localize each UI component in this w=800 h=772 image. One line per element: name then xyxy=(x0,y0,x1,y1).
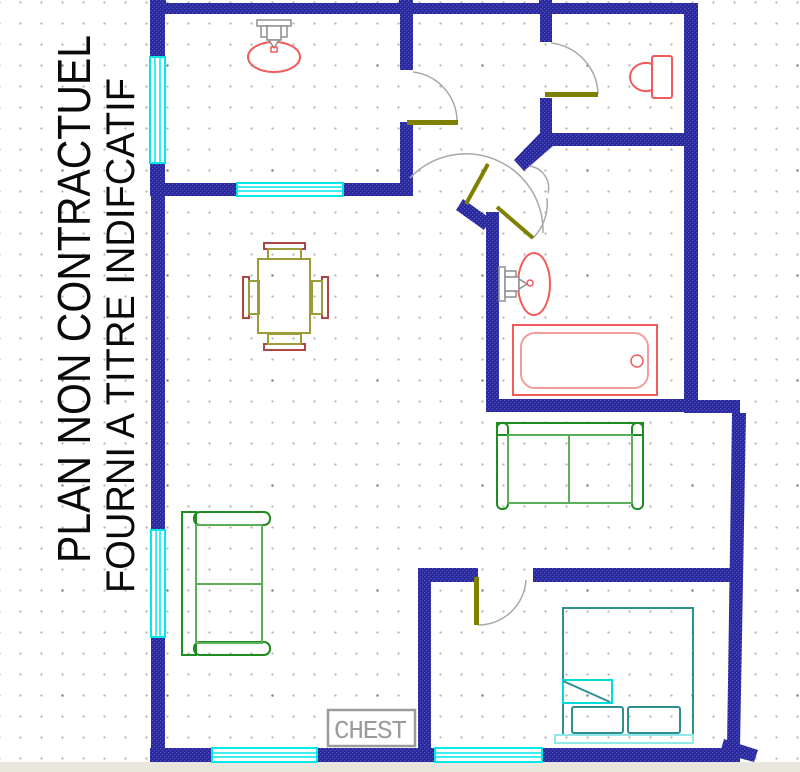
door-icon xyxy=(474,577,526,625)
sink-icon xyxy=(248,20,300,72)
windows xyxy=(150,57,542,762)
dining-table-icon xyxy=(243,243,328,350)
bathtub-icon xyxy=(513,325,657,395)
window-icon xyxy=(237,183,343,196)
plan-disclaimer-line2: FOURNI A TITRE INDIFCATIF xyxy=(99,78,143,593)
sink-icon xyxy=(499,253,550,315)
floorplan-canvas: CHEST PLAN NON CONTRACTUEL FOURNI A TITR… xyxy=(0,0,800,772)
window-icon xyxy=(151,530,165,637)
door-icon xyxy=(545,43,598,97)
toilet-icon xyxy=(630,56,672,98)
bed-icon xyxy=(555,608,693,743)
window-icon xyxy=(435,748,542,762)
walls xyxy=(150,0,758,762)
footer-strip xyxy=(0,762,800,772)
floorplan-drawing: CHEST PLAN NON CONTRACTUEL FOURNI A TITR… xyxy=(0,0,800,772)
door-icon xyxy=(407,72,458,125)
chest-label-text: CHEST xyxy=(334,716,408,746)
window-icon xyxy=(212,748,317,762)
chest-label: CHEST xyxy=(328,710,415,746)
plan-disclaimer-line1: PLAN NON CONTRACTUEL xyxy=(48,35,100,563)
window-icon xyxy=(150,57,165,163)
sofa-icon xyxy=(182,512,270,655)
loveseat-icon xyxy=(497,423,643,509)
